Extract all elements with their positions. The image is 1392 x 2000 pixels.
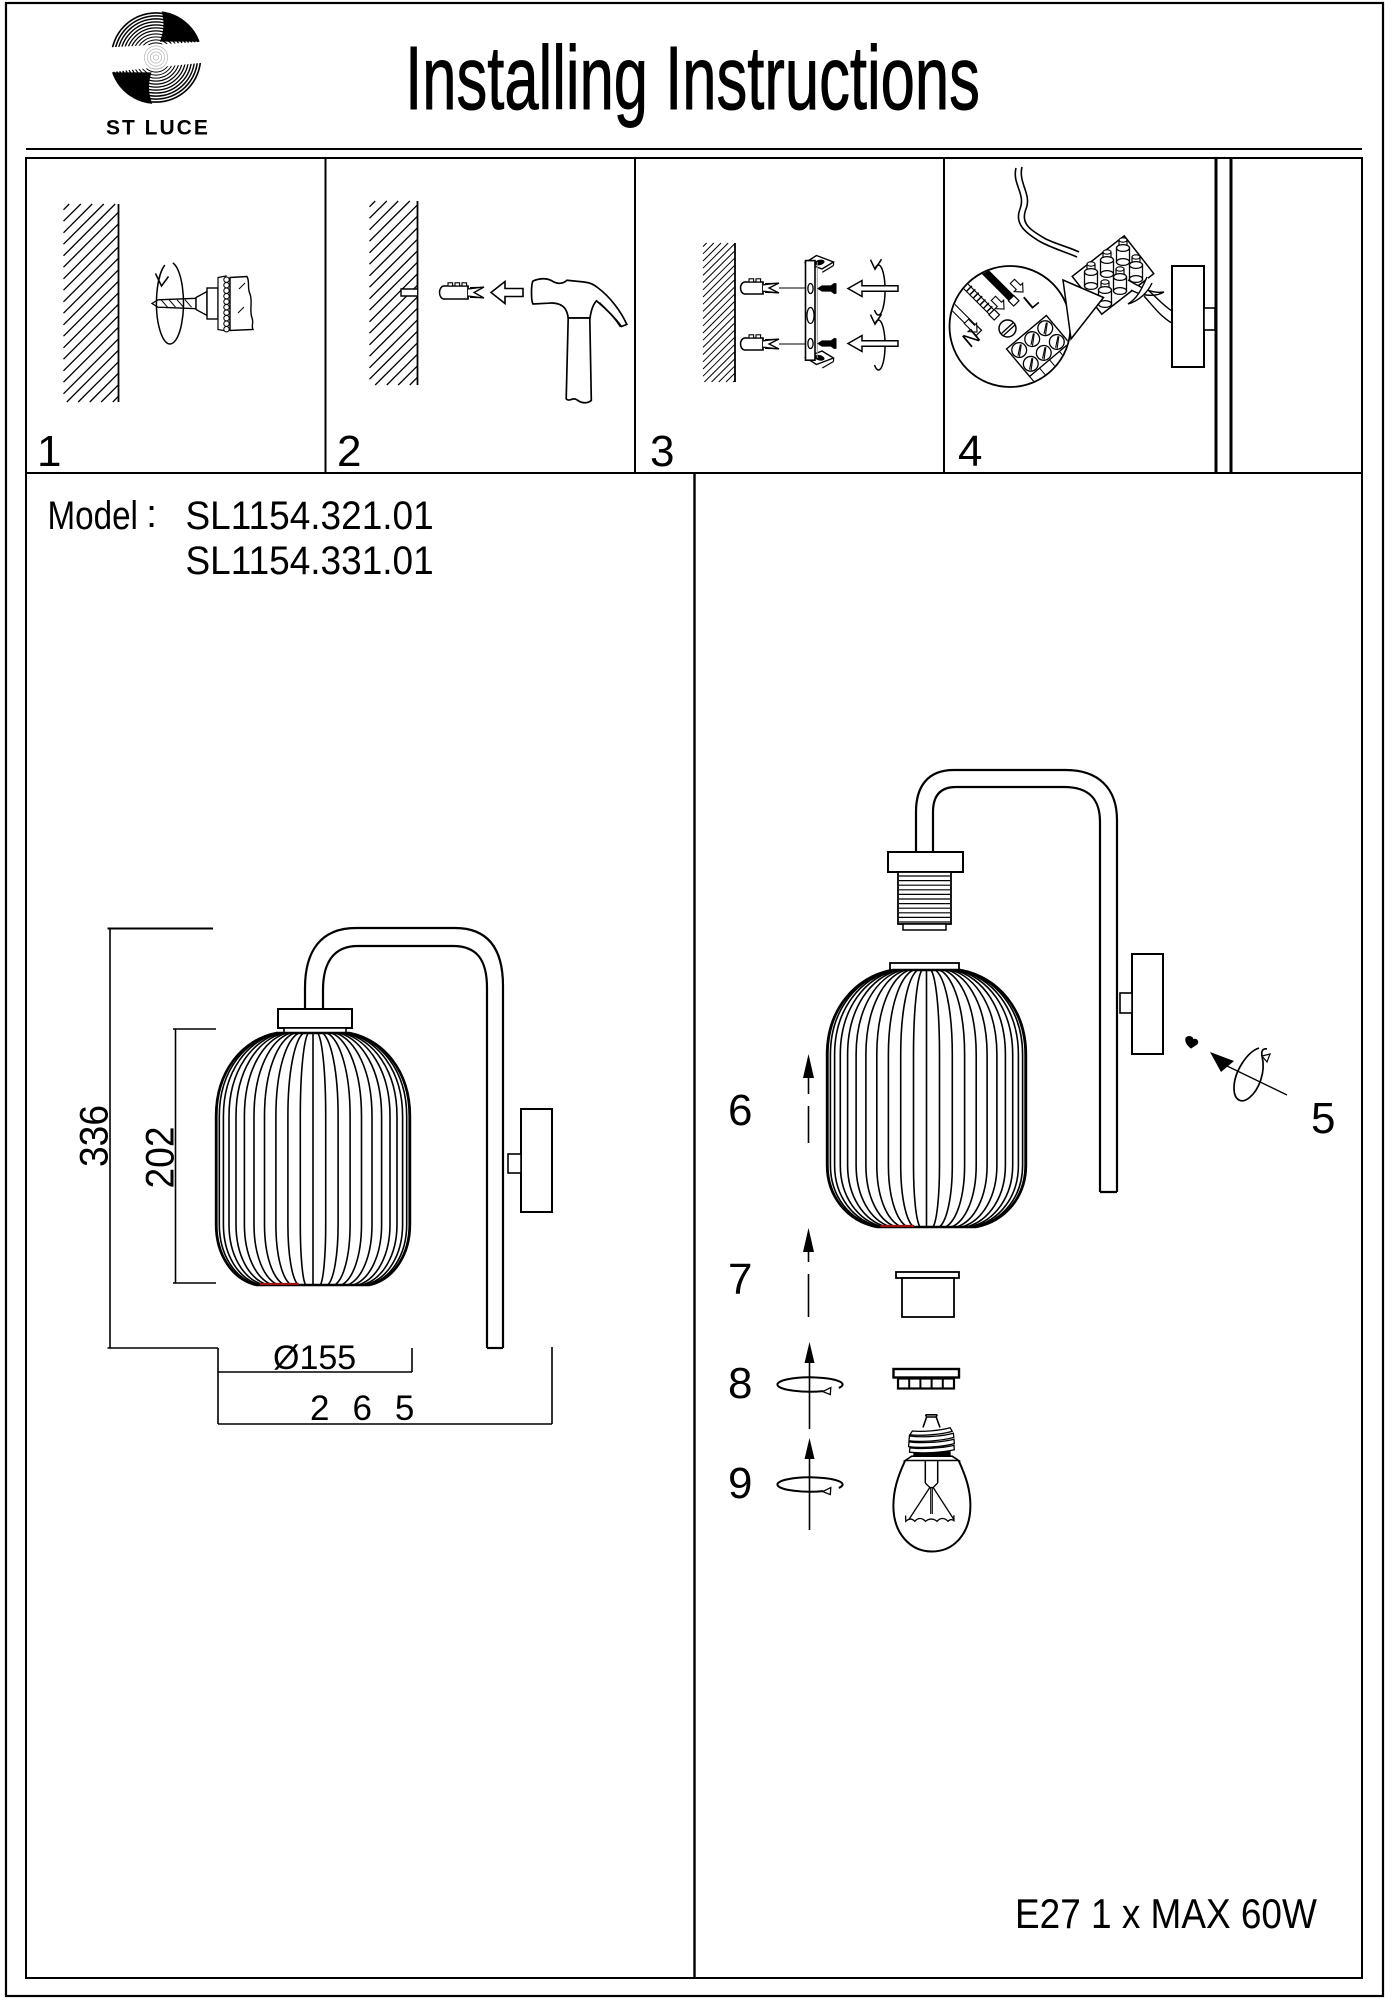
- svg-text:202: 202: [138, 1126, 183, 1188]
- svg-text:Installing Instructions: Installing Instructions: [405, 28, 980, 128]
- svg-text:4: 4: [958, 427, 982, 476]
- svg-text:336: 336: [72, 1105, 117, 1167]
- svg-text::: :: [146, 492, 157, 536]
- svg-text:ST LUCE: ST LUCE: [106, 117, 210, 140]
- svg-text:SL1154.321.01: SL1154.321.01: [186, 494, 434, 539]
- svg-text:3: 3: [650, 427, 674, 476]
- svg-text:Ø155: Ø155: [273, 1339, 356, 1377]
- svg-text:1: 1: [37, 427, 61, 476]
- svg-text:8: 8: [728, 1359, 752, 1408]
- svg-text:E27 1 x MAX 60W: E27 1 x MAX 60W: [1015, 1891, 1317, 1938]
- svg-text:2: 2: [337, 427, 361, 476]
- svg-text:7: 7: [728, 1255, 752, 1304]
- svg-text:9: 9: [728, 1459, 752, 1508]
- svg-text:SL1154.331.01: SL1154.331.01: [186, 539, 434, 584]
- svg-text:5: 5: [1311, 1094, 1335, 1143]
- svg-text:Model: Model: [48, 493, 138, 538]
- svg-text:6: 6: [728, 1086, 752, 1135]
- svg-text:265: 265: [310, 1389, 437, 1428]
